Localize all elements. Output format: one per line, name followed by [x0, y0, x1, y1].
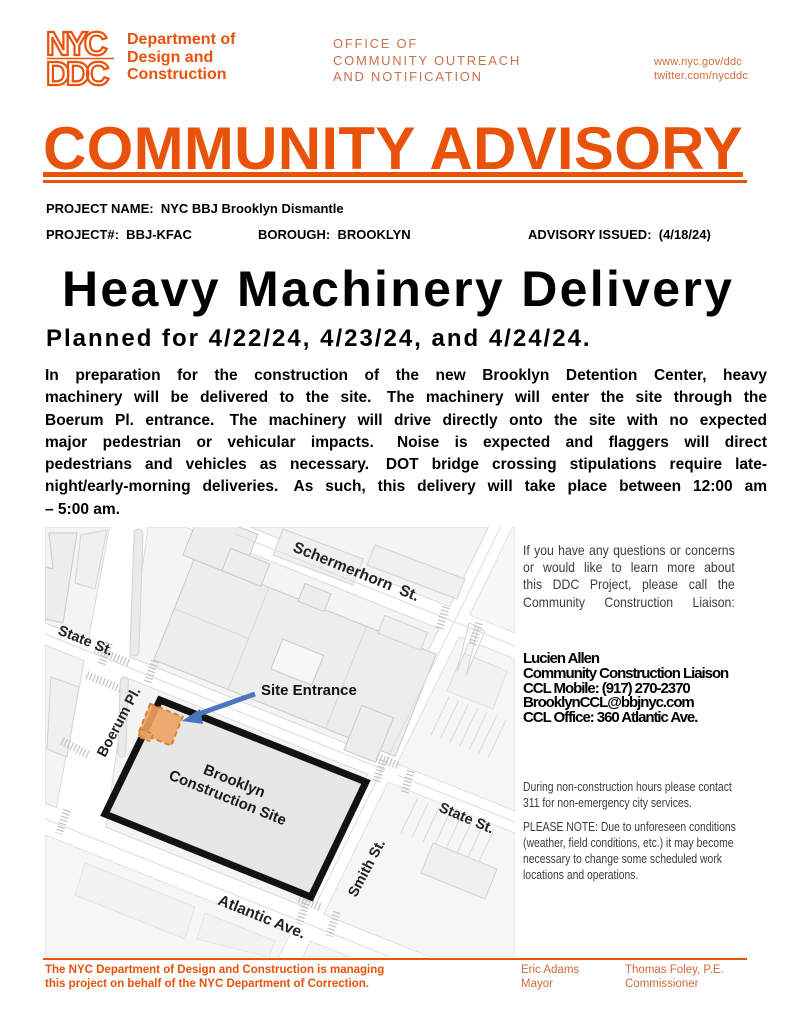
svg-text:DDC: DDC — [46, 55, 109, 91]
svg-text:Site Entrance: Site Entrance — [261, 682, 357, 699]
